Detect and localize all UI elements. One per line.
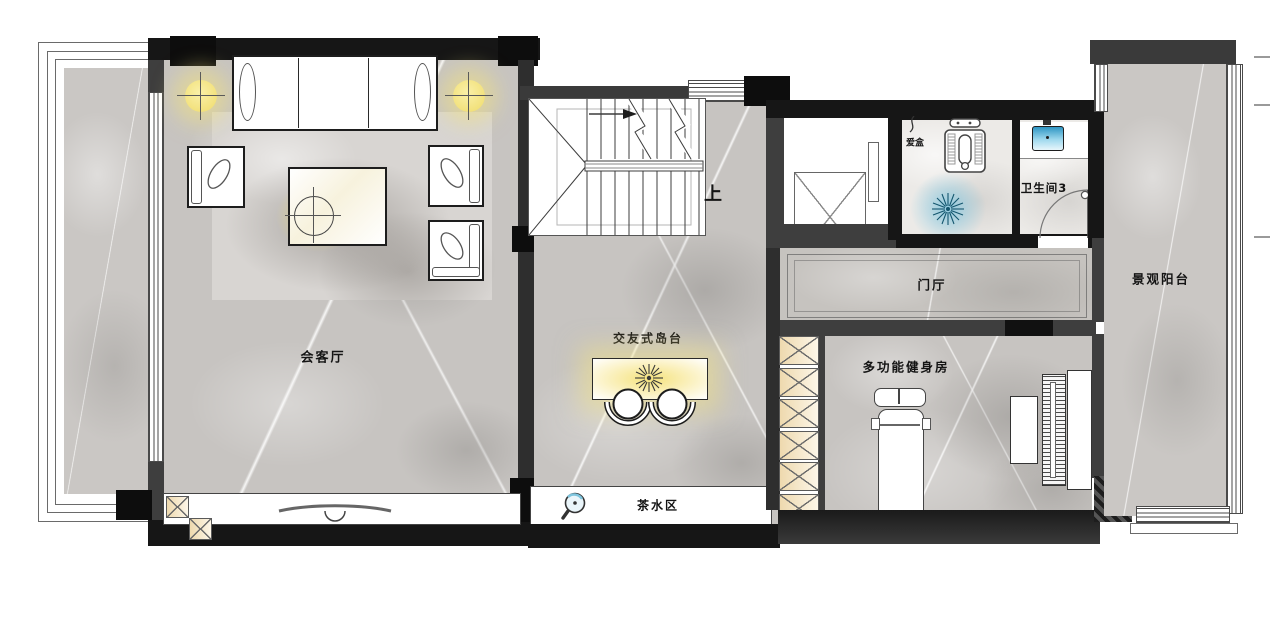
southwest-corner-block bbox=[116, 490, 152, 520]
room-label-living: 会客厅 bbox=[300, 347, 345, 366]
sofa bbox=[232, 55, 438, 131]
middle-south-wall bbox=[528, 524, 780, 548]
balcony-north-wall bbox=[1090, 40, 1236, 64]
bath3-door-arc bbox=[1038, 188, 1092, 240]
living-west-window bbox=[148, 92, 164, 462]
laundry-box-label: 爱盒 bbox=[906, 136, 924, 149]
gym-cabinet bbox=[1010, 396, 1038, 464]
room-label-balcony: 景观阳台 bbox=[1132, 269, 1190, 288]
wall-bars-slot bbox=[1050, 382, 1056, 478]
balcony-east-window bbox=[1226, 64, 1243, 514]
balcony-south-frame bbox=[1130, 523, 1238, 534]
balcony-west-window bbox=[1094, 64, 1108, 112]
stair-direction-arrow bbox=[589, 109, 637, 119]
dimension-tick bbox=[1254, 56, 1270, 58]
room-label-island: 交友式岛台 bbox=[613, 330, 683, 347]
storage-box bbox=[779, 336, 819, 365]
treadmill-side-tab bbox=[871, 418, 880, 430]
bath-divider-wall bbox=[1012, 120, 1020, 236]
ceiling-light-icon bbox=[185, 80, 217, 112]
gym-south-wall bbox=[778, 510, 1100, 544]
room-label-tea: 茶水区 bbox=[637, 497, 679, 514]
elevator-door-slot bbox=[868, 142, 879, 202]
gym-storage-back-wall bbox=[818, 336, 825, 518]
tea-sink-icon bbox=[560, 492, 588, 522]
laundry-cable-line bbox=[905, 116, 919, 136]
dimension-tick bbox=[1254, 236, 1270, 238]
sideboard-storage-box bbox=[166, 496, 189, 518]
treadmill-belt bbox=[878, 409, 924, 525]
elevator-west-wall bbox=[766, 118, 784, 226]
terrace-floor bbox=[64, 68, 148, 494]
storage-box bbox=[779, 368, 819, 397]
bath3-sink-drain bbox=[1046, 136, 1049, 139]
sofa-cushion-divider bbox=[298, 58, 299, 128]
corridor-west-wall bbox=[766, 248, 780, 510]
room-label-gym: 多功能健身房 bbox=[862, 357, 949, 376]
elevator-south-wall bbox=[766, 224, 908, 248]
sofa-cushion-divider bbox=[368, 58, 369, 128]
staircase bbox=[528, 98, 706, 236]
sideboard-storage-box bbox=[189, 518, 212, 540]
north-column-left bbox=[170, 36, 216, 66]
storage-box bbox=[779, 431, 819, 460]
gym-side-panel bbox=[1067, 370, 1092, 490]
sideboard-decor-curve bbox=[275, 502, 395, 522]
island-bar-chairs bbox=[598, 384, 700, 430]
gym-storage-column bbox=[779, 336, 819, 518]
foyer-south-column bbox=[1005, 320, 1053, 336]
stairs-up-label: 上 bbox=[704, 180, 724, 206]
room-label-foyer: 门厅 bbox=[917, 275, 946, 294]
floor-plan-canvas: 会客厅 bbox=[0, 0, 1277, 617]
bar-chair bbox=[651, 390, 693, 424]
balcony-floor bbox=[1104, 64, 1226, 516]
armchair-left bbox=[187, 146, 245, 208]
armchair-right-bottom bbox=[428, 220, 484, 281]
dimension-tick bbox=[1254, 104, 1270, 106]
coffee-table-light-icon bbox=[294, 196, 334, 236]
armchair-back bbox=[469, 149, 480, 203]
storage-box bbox=[779, 399, 819, 428]
armchair-back bbox=[191, 150, 202, 204]
treadmill-side-tab bbox=[922, 418, 931, 430]
treadmill-deck-line bbox=[880, 424, 920, 426]
coffee-table-light-cross-v bbox=[313, 187, 314, 243]
storage-box bbox=[779, 462, 819, 491]
sofa-armrest bbox=[414, 63, 431, 121]
bar-chair bbox=[607, 390, 649, 424]
treadmill-console-divider bbox=[898, 389, 900, 404]
armchair-seat bbox=[432, 267, 480, 277]
toilet-icon bbox=[942, 118, 990, 174]
stair-handrail bbox=[585, 161, 703, 171]
shower-light-icon bbox=[931, 192, 965, 226]
living-east-wall-lower bbox=[518, 252, 534, 478]
armchair-right-top bbox=[428, 145, 484, 207]
ceiling-light-icon bbox=[453, 80, 485, 112]
treadmill-console bbox=[874, 388, 926, 407]
core-north-wall bbox=[766, 100, 1106, 120]
bath3-faucet bbox=[1043, 120, 1051, 125]
sofa-armrest bbox=[239, 63, 256, 121]
balcony-south-window bbox=[1136, 506, 1230, 523]
